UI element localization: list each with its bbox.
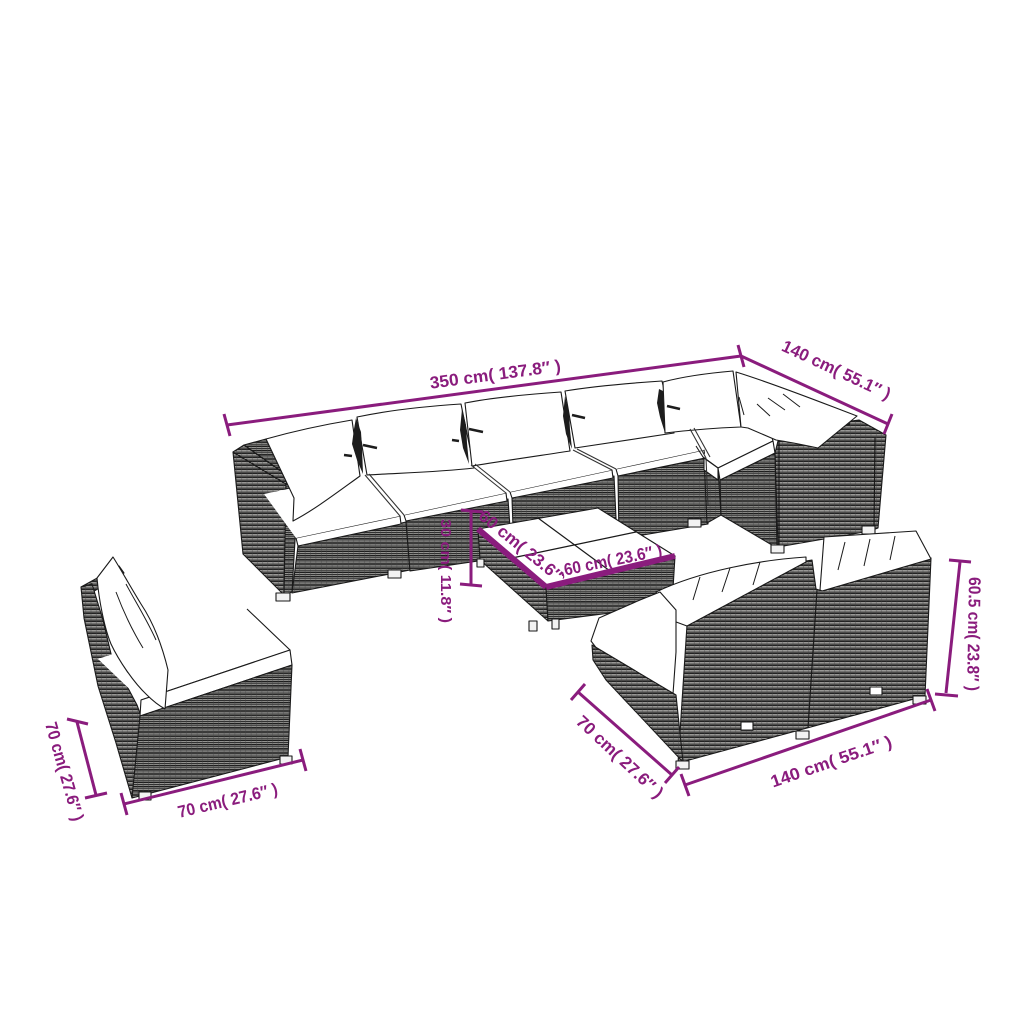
svg-text:30 cm( 11.8″ ): 30 cm( 11.8″ ) — [437, 519, 454, 623]
svg-text:60.5 cm( 23.8″ ): 60.5 cm( 23.8″ ) — [963, 577, 984, 691]
